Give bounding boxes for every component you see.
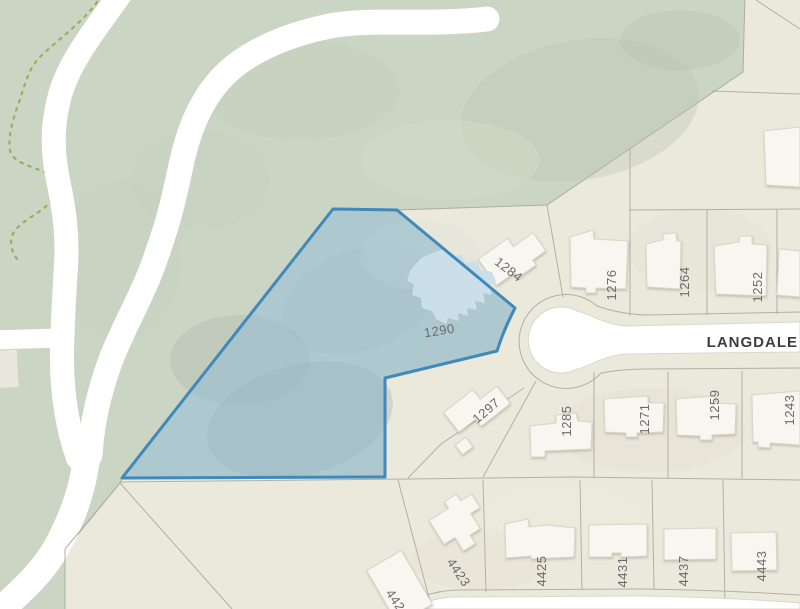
parcel-label-4425: 4425 <box>534 556 549 587</box>
map-viewport[interactable]: 1284 1276 1264 1252 1290 1297 1285 1271 … <box>0 0 800 609</box>
road-west-stub <box>0 338 58 340</box>
parcel-label-4443: 4443 <box>754 551 769 582</box>
parcel-label-1259: 1259 <box>707 390 722 421</box>
parcel-label-4431: 4431 <box>615 557 630 588</box>
left-edge-structure <box>0 349 19 389</box>
parcel-label-4437: 4437 <box>676 556 691 587</box>
parcel-label-1276: 1276 <box>604 270 619 301</box>
parcel-label-1285: 1285 <box>559 406 574 437</box>
parcel-label-1252: 1252 <box>750 272 765 303</box>
house-4431 <box>589 524 647 557</box>
house-corner-top-right <box>764 127 800 187</box>
parcel-label-1264: 1264 <box>677 267 692 298</box>
parcel-label-1243: 1243 <box>782 395 797 426</box>
house-4437 <box>664 528 716 560</box>
map-canvas[interactable]: 1284 1276 1264 1252 1290 1297 1285 1271 … <box>0 0 800 609</box>
street-name-label: LANGDALE <box>707 334 798 351</box>
house-partial-right <box>777 249 800 297</box>
parcel-label-1271: 1271 <box>637 404 652 435</box>
